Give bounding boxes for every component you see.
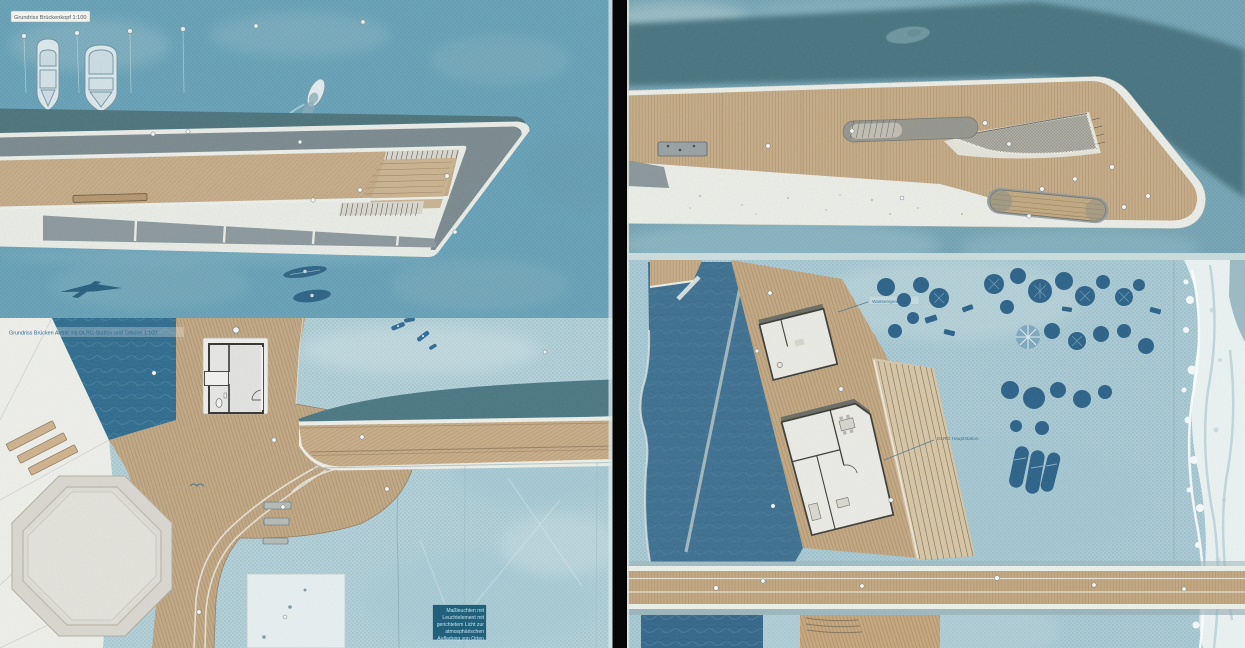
svg-text:atmosphärischen: atmosphärischen xyxy=(445,629,484,635)
svg-text:Maßleuchten mit: Maßleuchten mit xyxy=(446,608,484,614)
svg-text:gerichtetem Licht zur: gerichtetem Licht zur xyxy=(437,622,485,628)
svg-text:Grundriss Brückenkopf 1:100: Grundriss Brückenkopf 1:100 xyxy=(14,15,86,21)
svg-text:Aufladung von Orten: Aufladung von Orten xyxy=(437,636,484,642)
svg-text:Grundriss Brücken Antritt mit: Grundriss Brücken Antritt mit DLRG Stati… xyxy=(9,331,157,337)
svg-text:Leuchtelement mit: Leuchtelement mit xyxy=(442,615,484,621)
